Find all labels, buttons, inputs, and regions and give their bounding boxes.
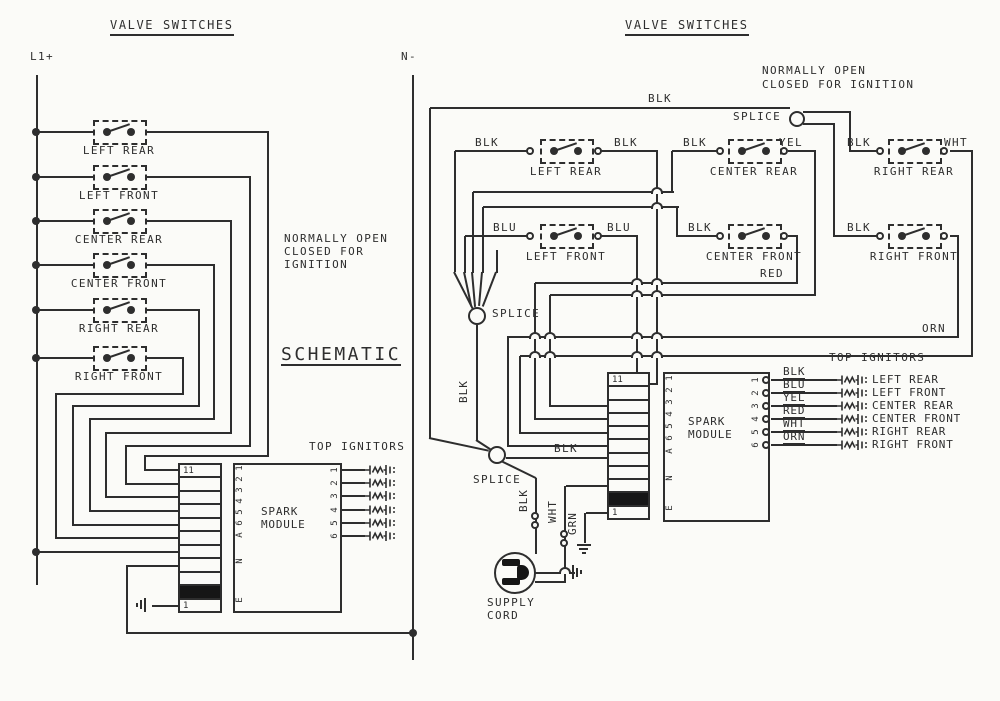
wire-color-label: RED [760, 268, 784, 280]
terminal-circle [780, 232, 788, 240]
ignitor-icon [364, 503, 396, 517]
wire-segment [145, 357, 184, 359]
wire-color-label: WHT [546, 500, 559, 523]
module-pin-label: 5 [751, 427, 761, 437]
terminal-circle [716, 147, 724, 155]
module-pin-label: 5 [330, 518, 340, 528]
wire-segment [144, 455, 269, 457]
wire-hop-icon [544, 351, 556, 358]
wire-color-label: BLK [688, 222, 712, 234]
connector-strip: 11 1 [607, 372, 650, 520]
wire-segment [126, 565, 180, 567]
wire-segment [105, 432, 232, 434]
valve-switch-center-front [93, 253, 147, 278]
wire-hop-icon [651, 187, 663, 194]
module-pin-label: 6 [235, 518, 245, 528]
wire-segment [341, 495, 365, 497]
connector-cell [180, 559, 220, 572]
module-pin-label: A [235, 530, 245, 540]
wire-segment [550, 294, 816, 296]
connector-cell: 1 [609, 507, 648, 518]
ignitor-name: RIGHT FRONT [872, 439, 954, 451]
wire-segment [145, 220, 232, 222]
wire-segment [636, 236, 638, 393]
ignitor-name: LEFT REAR [872, 374, 939, 386]
junction-dot [574, 232, 582, 240]
valve-switch-right-rear [93, 298, 147, 323]
module-pin-label: 3 [665, 397, 675, 407]
ground-icon [577, 544, 591, 554]
valve-switch-center-front-wiring [728, 224, 782, 249]
wire-segment [549, 405, 609, 407]
valve-switch-left-rear-wiring [540, 139, 594, 164]
inline-connector [560, 530, 568, 538]
module-pin-label: 1 [235, 463, 245, 473]
valve-switch-left-front-wiring [540, 224, 594, 249]
wire-color-label: BLK [517, 489, 530, 512]
terminal-circle [594, 147, 602, 155]
wire-segment [429, 108, 431, 439]
wire-hop-icon [651, 202, 663, 209]
connector-cell [609, 387, 648, 400]
wire-segment [482, 207, 484, 273]
module-pin-label: E [665, 503, 675, 513]
wire-segment [55, 393, 184, 395]
wire-segment [126, 632, 415, 634]
connector-cell [180, 573, 220, 586]
switch-label: CENTER REAR [684, 166, 824, 178]
splice-label: SPLICE [492, 308, 540, 320]
module-pin-label: 2 [235, 474, 245, 484]
valve-switch-left-rear [93, 120, 147, 145]
wire-hop-icon [651, 332, 663, 339]
wire-segment [145, 176, 251, 178]
junction-dot [762, 232, 770, 240]
connector-strip: 11 1 [178, 463, 222, 613]
schematic-heading: SCHEMATIC [281, 349, 401, 366]
wire-hop-icon [631, 278, 643, 285]
wire-color-label: BLK [648, 93, 672, 105]
wire-segment [472, 192, 474, 273]
wire-segment [471, 272, 476, 307]
wire-segment [125, 446, 127, 485]
wire-segment [803, 123, 835, 125]
terminal-circle [762, 415, 770, 423]
connector-cell [609, 493, 648, 506]
junction-dot [127, 173, 135, 181]
wire-color-label: GRN [566, 512, 579, 535]
connector-cell [609, 414, 648, 427]
spark-module-name: MODULE [261, 519, 306, 531]
wire-segment [519, 356, 521, 434]
ignitor-name: RIGHT REAR [872, 426, 946, 438]
module-pin-label: 3 [751, 401, 761, 411]
junction-dot [127, 306, 135, 314]
wire-segment [145, 131, 269, 133]
wire-segment [55, 394, 57, 539]
wire-segment [483, 206, 679, 208]
wire-segment [586, 512, 608, 514]
wire-segment [506, 457, 608, 459]
wire-segment [37, 357, 95, 359]
module-pin-label: 3 [235, 485, 245, 495]
junction-dot [32, 173, 40, 181]
wire-segment [37, 309, 95, 311]
module-pin-label: N [665, 473, 675, 483]
terminal-circle [716, 232, 724, 240]
wire-segment [535, 581, 566, 583]
switch-label: RIGHT REAR [58, 323, 180, 335]
ignitor-name: LEFT FRONT [872, 387, 946, 399]
wire-hop-icon [651, 351, 663, 358]
module-pin-label: 4 [665, 409, 675, 419]
connector-cell: 1 [180, 600, 220, 611]
switch-label: LEFT REAR [496, 166, 636, 178]
splice-connector [488, 446, 506, 464]
ignitor-icon [364, 463, 396, 477]
ignitor-icon [364, 516, 396, 530]
wire-segment [341, 469, 365, 471]
wire-color-label: BLK [847, 137, 871, 149]
wire-segment [89, 510, 180, 512]
switch-label: RIGHT FRONT [58, 371, 180, 383]
connector-cell [609, 401, 648, 414]
module-pin-label: N [235, 556, 245, 566]
wire-segment [341, 482, 365, 484]
inline-connector [531, 521, 539, 529]
switch-label: RIGHT REAR [844, 166, 984, 178]
module-pin-label: 2 [665, 385, 675, 395]
module-pin-label: 2 [330, 478, 340, 488]
terminal-circle [762, 428, 770, 436]
switch-label: CENTER FRONT [58, 278, 180, 290]
switch-label: CENTER FRONT [684, 251, 824, 263]
wire-segment [72, 524, 180, 526]
connector-cell: 11 [180, 465, 220, 478]
wire-color-label: BLK [475, 137, 499, 149]
wire-segment [465, 235, 532, 237]
wire-hop-icon [559, 567, 571, 574]
junction-dot [127, 128, 135, 136]
note-line: CLOSED FOR [284, 246, 364, 258]
module-pin-label: 6 [330, 531, 340, 541]
wire-segment [125, 445, 251, 447]
note-line: IGNITION [284, 259, 348, 271]
splice-label: SPLICE [733, 111, 781, 123]
ignitor-name: CENTER REAR [872, 400, 954, 412]
wire-color-label: YEL [779, 137, 803, 149]
wire-hop-icon [631, 332, 643, 339]
junction-dot [574, 147, 582, 155]
module-pin-label: 5 [235, 507, 245, 517]
wire-segment [803, 111, 851, 113]
valve-switch-left-front [93, 165, 147, 190]
ground-icon [136, 598, 146, 612]
wire-color-label: ORN [922, 323, 946, 335]
junction-dot [32, 217, 40, 225]
spark-module-name: SPARK [688, 416, 725, 428]
note-line: NORMALLY OPEN [762, 65, 866, 77]
right-title: VALVE SWITCHES [625, 19, 749, 36]
wire-segment [341, 535, 365, 537]
connector-cell [609, 467, 648, 480]
left-title: VALVE SWITCHES [110, 19, 234, 36]
terminal-circle [762, 389, 770, 397]
wire-segment [249, 177, 251, 447]
rail-label-l1: L1+ [30, 51, 54, 63]
wire-segment [478, 272, 483, 306]
switch-label: LEFT FRONT [496, 251, 636, 263]
supply-cord-label: SUPPLY [487, 597, 535, 609]
connector-pin-11: 11 [612, 375, 623, 385]
junction-dot [922, 232, 930, 240]
module-pin-label: 6 [665, 433, 675, 443]
splice-connector [468, 307, 486, 325]
junction-dot [32, 128, 40, 136]
wire-segment [412, 75, 414, 660]
wire-segment [455, 150, 532, 152]
module-pin-label: E [235, 595, 245, 605]
terminal-circle [594, 232, 602, 240]
ignitor-icon [836, 386, 868, 400]
note-line: NORMALLY OPEN [284, 233, 388, 245]
wire-segment [482, 272, 497, 307]
junction-dot [409, 629, 417, 637]
wire-segment [72, 406, 74, 526]
wire-segment [182, 358, 184, 395]
wire-segment [230, 221, 232, 434]
wire-hop-icon [631, 290, 643, 297]
module-pin-label: 5 [665, 421, 675, 431]
wire-segment [198, 310, 200, 407]
ignitor-icon [836, 412, 868, 426]
terminal-circle [876, 232, 884, 240]
spark-module-name: MODULE [688, 429, 733, 441]
connector-cell [180, 532, 220, 545]
wire-segment [37, 176, 95, 178]
junction-dot [32, 261, 40, 269]
wire-segment [519, 432, 609, 434]
wire-segment [430, 107, 790, 109]
connector-cell [609, 440, 648, 453]
wire-segment [145, 264, 215, 266]
inline-connector [560, 539, 568, 547]
wire-segment [105, 433, 107, 498]
terminal-circle [526, 147, 534, 155]
wire-segment [788, 150, 816, 152]
junction-dot [32, 306, 40, 314]
wire-segment [833, 124, 835, 236]
inline-connector [531, 512, 539, 520]
terminal-circle [762, 402, 770, 410]
junction-dot [127, 261, 135, 269]
wire-segment [37, 220, 95, 222]
wire-hop-icon [529, 332, 541, 339]
wire-hop-icon [631, 351, 643, 358]
module-pin-label: 4 [330, 505, 340, 515]
wire-segment [144, 469, 180, 471]
junction-dot [762, 147, 770, 155]
top-ignitors-label: TOP IGNITORS [309, 441, 405, 453]
wire-segment [566, 485, 608, 487]
module-pin-label: 1 [751, 375, 761, 385]
wire-segment [89, 419, 91, 512]
wiring-schematic-canvas: LEFT REAR LEFT FRONT CENTER REAR CENTER … [0, 0, 1000, 701]
wire-segment [507, 337, 509, 447]
valve-switch-center-rear [93, 209, 147, 234]
module-pin-label: 1 [665, 373, 675, 383]
wire-segment [37, 264, 95, 266]
wire-segment [534, 418, 609, 420]
wire-segment [676, 207, 678, 237]
wire-segment [213, 265, 215, 420]
top-ignitors-label: TOP IGNITORS [829, 352, 925, 364]
module-pin-label: 2 [751, 388, 761, 398]
connector-cell [609, 480, 648, 493]
wire-color-label: WHT [944, 137, 968, 149]
connector-cell [180, 586, 220, 599]
ignitor-name: CENTER FRONT [872, 413, 961, 425]
wire-segment [152, 605, 180, 607]
wire-segment [473, 191, 674, 193]
ignitor-icon [836, 373, 868, 387]
connector-cell: 11 [609, 374, 648, 387]
wire-color-label: BLK [554, 443, 578, 455]
ignitor-icon [364, 529, 396, 543]
wire-hop-icon [651, 278, 663, 285]
wire-segment [125, 483, 180, 485]
module-pin-label: 1 [330, 465, 340, 475]
wire-segment [341, 509, 365, 511]
valve-switch-right-front [93, 346, 147, 371]
junction-dot [922, 147, 930, 155]
junction-dot [127, 217, 135, 225]
supply-cord-label: CORD [487, 610, 519, 622]
wire-segment [950, 150, 973, 152]
switch-label: LEFT REAR [58, 145, 180, 157]
wire-color-label: BLU [493, 222, 517, 234]
terminal-circle [940, 232, 948, 240]
terminal-circle [762, 441, 770, 449]
junction-dot [127, 354, 135, 362]
connector-pin-11: 11 [183, 466, 194, 476]
terminal-circle [526, 232, 534, 240]
junction-dot [32, 354, 40, 362]
splice-label: SPLICE [473, 474, 521, 486]
wire-segment [145, 309, 200, 311]
wire-segment [584, 513, 586, 543]
switch-label: RIGHT FRONT [844, 251, 984, 263]
wire-color-label: BLK [457, 380, 470, 403]
wire-segment [833, 235, 882, 237]
connector-cell [609, 454, 648, 467]
wire-color-label: BLK [614, 137, 638, 149]
wire-segment [89, 418, 215, 420]
wire-segment [55, 537, 180, 539]
spark-module [233, 463, 342, 613]
wire-segment [37, 131, 95, 133]
switch-label: LEFT FRONT [58, 190, 180, 202]
wire-segment [126, 566, 128, 634]
connector-pin-1: 1 [183, 601, 188, 611]
valve-switch-right-rear-wiring [888, 139, 942, 164]
module-pin-label: 4 [751, 414, 761, 424]
wire-segment [36, 75, 38, 585]
wire-color-label: BLK [683, 137, 707, 149]
connector-cell [180, 492, 220, 505]
connector-pin-1: 1 [612, 508, 617, 518]
valve-switch-right-front-wiring [888, 224, 942, 249]
switch-label: CENTER REAR [58, 234, 180, 246]
connector-cell [180, 505, 220, 518]
wire-segment [507, 336, 959, 338]
wire-segment [476, 325, 478, 441]
junction-dot [32, 548, 40, 556]
wire-segment [72, 405, 200, 407]
connector-cell [180, 546, 220, 559]
wire-segment [600, 235, 638, 237]
wire-segment [105, 496, 180, 498]
ignitor-icon [364, 476, 396, 490]
splice-connector [789, 111, 805, 127]
connector-cell [180, 519, 220, 532]
connector-cell [609, 427, 648, 440]
connector-cell [180, 478, 220, 491]
module-pin-label: 3 [330, 491, 340, 501]
ignitor-icon [836, 438, 868, 452]
wire-segment [464, 236, 466, 273]
ignitor-icon [364, 489, 396, 503]
wire-hop-icon [529, 351, 541, 358]
rail-label-n: N- [401, 51, 417, 63]
spark-module-name: SPARK [261, 506, 298, 518]
module-pin-label: 4 [235, 496, 245, 506]
ignitor-wire-color: ORN [783, 431, 805, 445]
wire-segment [454, 151, 456, 272]
wire-segment [600, 150, 658, 152]
ignitor-icon [836, 399, 868, 413]
ground-icon [572, 565, 582, 579]
wire-color-label: BLK [847, 222, 871, 234]
wire-segment [37, 551, 180, 553]
wire-segment [341, 522, 365, 524]
wire-hop-icon [651, 290, 663, 297]
module-pin-label: A [665, 446, 675, 456]
terminal-circle [876, 147, 884, 155]
wire-color-label: BLU [607, 222, 631, 234]
valve-switch-center-rear-wiring [728, 139, 782, 164]
ignitor-icon [836, 425, 868, 439]
module-pin-label: 6 [751, 440, 761, 450]
note-line: CLOSED FOR IGNITION [762, 79, 914, 91]
wire-segment [672, 150, 722, 152]
wire-hop-icon [544, 332, 556, 339]
wire-segment [535, 282, 798, 284]
wire-segment [267, 132, 269, 457]
wire-segment [671, 151, 673, 193]
terminal-circle [762, 376, 770, 384]
